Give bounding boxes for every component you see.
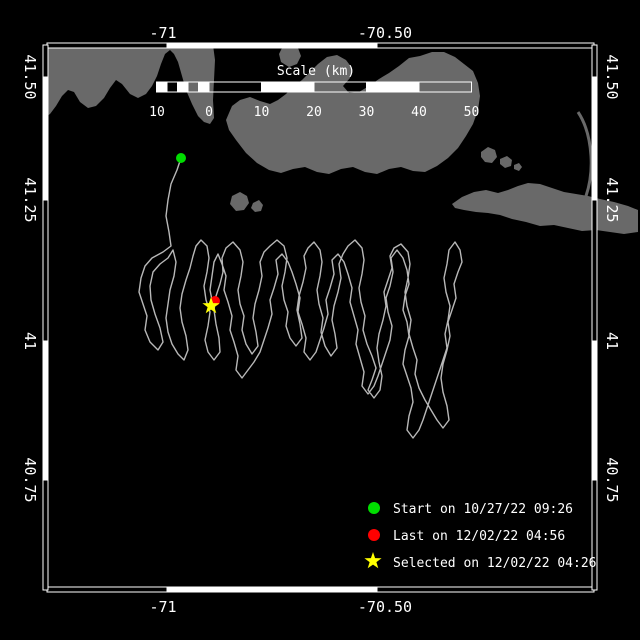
axis-label-bottom-lon2: -70.50 (358, 598, 412, 616)
axis-label-top-lon2: -70.50 (358, 24, 412, 42)
scale-bar-block (178, 82, 189, 92)
frame-block (47, 43, 167, 48)
legend-selected-label: Selected on 12/02/22 04:26 (393, 556, 597, 571)
scale-tick-label: 30 (359, 105, 375, 120)
axis-label-right-lat3: 41 (603, 332, 621, 350)
tracking-map-window: -71 -70.50 -71 -70.50 41.50 41.25 41 40.… (0, 0, 640, 640)
scale-bar-title: Scale (km) (277, 64, 355, 79)
frame-block (47, 587, 167, 592)
scale-tick-label: 40 (411, 105, 427, 120)
axis-label-right-lat4: 40.75 (603, 457, 621, 502)
frame-block (43, 45, 48, 77)
legend-start-label: Start on 10/27/22 09:26 (393, 502, 573, 517)
start-position-marker[interactable] (176, 153, 186, 163)
legend-last-label: Last on 12/02/22 04:56 (393, 529, 565, 544)
scale-tick-label: 10 (149, 105, 165, 120)
axis-label-left-lat4: 40.75 (21, 457, 39, 502)
scale-tick-label: 0 (205, 105, 213, 120)
axis-label-right-lat2: 41.25 (603, 177, 621, 222)
frame-block (43, 341, 48, 480)
frame-block (592, 341, 597, 480)
scale-bar-block (199, 82, 210, 92)
frame-block (592, 200, 597, 341)
frame-block (592, 480, 597, 590)
axis-label-left-lat2: 41.25 (21, 177, 39, 222)
scale-tick-label: 50 (464, 105, 480, 120)
legend-start-dot (368, 502, 380, 514)
legend: Start on 10/27/22 09:26 Last on 12/02/22… (364, 502, 596, 571)
frame-block (377, 587, 594, 592)
frame-block (43, 77, 48, 200)
scale-bar-block (262, 82, 315, 92)
axis-label-top-lon1: -71 (149, 24, 176, 42)
frame-block (43, 200, 48, 341)
frame-block (167, 43, 377, 48)
axis-label-right-lat1: 41.50 (603, 54, 621, 99)
frame-block (377, 43, 594, 48)
frame-block (43, 480, 48, 590)
scale-bar-block (157, 82, 168, 92)
axis-label-bottom-lon1: -71 (149, 598, 176, 616)
scale-tick-label: 20 (306, 105, 322, 120)
scale-tick-label: 10 (254, 105, 270, 120)
map-canvas[interactable]: -71 -70.50 -71 -70.50 41.50 41.25 41 40.… (0, 0, 640, 640)
axis-label-left-lat3: 41 (21, 332, 39, 350)
frame-block (592, 77, 597, 200)
frame-block (167, 587, 377, 592)
legend-last-dot (368, 529, 380, 541)
axis-label-left-lat1: 41.50 (21, 54, 39, 99)
scale-bar-block (367, 82, 420, 92)
frame-block (592, 45, 597, 77)
